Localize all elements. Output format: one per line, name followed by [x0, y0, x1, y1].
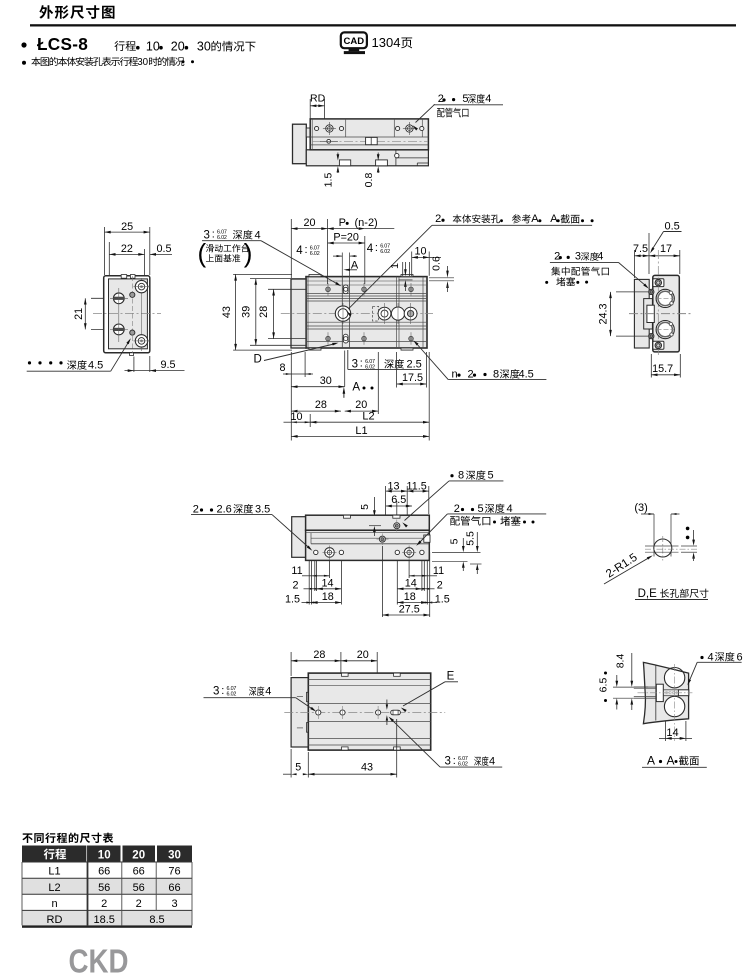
svg-text::: : [375, 242, 378, 254]
svg-text:56: 56 [133, 882, 145, 894]
svg-text:2: 2 [292, 580, 298, 592]
svg-text:6.02: 6.02 [458, 761, 468, 767]
svg-text:10: 10 [146, 40, 160, 54]
svg-text:(: ( [198, 238, 207, 268]
svg-text:30: 30 [197, 40, 211, 54]
svg-text:4: 4 [296, 245, 303, 257]
svg-text:15.7: 15.7 [652, 363, 673, 375]
svg-text:5: 5 [488, 470, 494, 482]
svg-text:2.5: 2.5 [407, 359, 422, 371]
svg-text:(3): (3) [634, 502, 647, 514]
svg-text:P: P [339, 217, 346, 229]
svg-text:9.5: 9.5 [161, 359, 176, 371]
svg-text:n: n [51, 898, 57, 910]
svg-text:11: 11 [433, 565, 444, 577]
svg-text:20: 20 [132, 849, 145, 861]
svg-text:4: 4 [255, 229, 261, 241]
svg-text:L1: L1 [355, 425, 367, 437]
svg-text:A: A [550, 213, 558, 225]
svg-text:L2: L2 [362, 411, 374, 423]
svg-text:1.5: 1.5 [285, 593, 300, 605]
svg-text:18.5: 18.5 [93, 914, 114, 926]
svg-text:L2: L2 [48, 882, 60, 894]
svg-text:3: 3 [575, 251, 581, 263]
svg-text:RD: RD [310, 93, 326, 105]
svg-text:21: 21 [73, 308, 85, 320]
svg-text:2: 2 [193, 503, 199, 515]
svg-text:66: 66 [133, 866, 145, 878]
svg-text::: : [360, 358, 363, 370]
svg-text:8.5: 8.5 [149, 914, 164, 926]
svg-text:1304: 1304 [372, 35, 401, 50]
svg-text:7.5: 7.5 [633, 243, 648, 255]
svg-text::: : [212, 229, 215, 241]
svg-text:1: 1 [389, 263, 401, 269]
svg-text:18: 18 [322, 591, 334, 603]
svg-text:30: 30 [168, 849, 181, 861]
svg-text:A: A [531, 213, 539, 225]
svg-text:3: 3 [171, 898, 177, 910]
svg-text:4: 4 [708, 651, 714, 663]
svg-text:10: 10 [290, 411, 302, 423]
svg-text:20: 20 [357, 649, 369, 661]
svg-text:13: 13 [388, 481, 400, 493]
svg-text:39: 39 [241, 306, 253, 318]
svg-text:6.02: 6.02 [217, 235, 227, 241]
svg-text:): ) [244, 238, 253, 268]
svg-text:4.5: 4.5 [519, 369, 534, 381]
svg-text:20: 20 [171, 40, 185, 54]
svg-text:28: 28 [313, 649, 325, 661]
svg-text:0.5: 0.5 [665, 221, 680, 233]
svg-text:28: 28 [315, 399, 327, 411]
svg-text:8: 8 [493, 369, 499, 381]
svg-text:4: 4 [489, 756, 495, 768]
svg-text:D: D [254, 354, 262, 366]
svg-text:0.5: 0.5 [157, 243, 172, 255]
svg-text:(n-2): (n-2) [355, 217, 378, 229]
svg-text:10: 10 [415, 246, 427, 258]
svg-text:5: 5 [462, 93, 468, 105]
svg-text:2: 2 [136, 898, 142, 910]
svg-text:5: 5 [478, 503, 484, 515]
svg-text:3: 3 [445, 756, 451, 768]
svg-text:11: 11 [291, 565, 302, 577]
svg-text:2: 2 [468, 369, 474, 381]
svg-text:4: 4 [485, 93, 491, 105]
svg-text:CAD: CAD [344, 36, 365, 47]
svg-text:4: 4 [265, 686, 271, 698]
svg-text:66: 66 [168, 882, 180, 894]
svg-text:24.3: 24.3 [598, 303, 610, 324]
svg-text:P=20: P=20 [333, 232, 359, 244]
svg-text:20: 20 [303, 217, 315, 229]
svg-text:30: 30 [137, 57, 148, 68]
svg-text:8.4: 8.4 [614, 654, 626, 669]
svg-text:25: 25 [121, 221, 133, 233]
svg-text:ŁCS-8: ŁCS-8 [37, 34, 88, 54]
svg-text::: : [453, 755, 456, 767]
svg-text::: : [221, 685, 224, 697]
svg-text:5: 5 [448, 538, 460, 544]
svg-text:30: 30 [320, 375, 332, 387]
svg-text:3: 3 [213, 686, 219, 698]
svg-text:17.5: 17.5 [402, 372, 423, 384]
svg-text:17: 17 [660, 243, 672, 255]
svg-text:8: 8 [458, 470, 464, 482]
svg-text:66: 66 [98, 866, 110, 878]
svg-text:43: 43 [221, 306, 233, 318]
svg-text:A: A [647, 753, 655, 767]
svg-text:1.5: 1.5 [323, 173, 335, 188]
svg-text:2: 2 [454, 503, 460, 515]
svg-text:4: 4 [367, 243, 374, 255]
svg-text:2: 2 [101, 898, 107, 910]
svg-text:1.5: 1.5 [435, 593, 450, 605]
svg-text:11.5: 11.5 [407, 481, 427, 493]
svg-text:27.5: 27.5 [399, 604, 420, 616]
svg-text:28: 28 [258, 306, 270, 318]
svg-text:5.5: 5.5 [464, 531, 476, 546]
svg-text:A: A [667, 753, 675, 767]
svg-text:6.02: 6.02 [380, 249, 390, 255]
svg-text:2: 2 [437, 580, 443, 592]
svg-text:14: 14 [666, 727, 678, 739]
svg-text:56: 56 [98, 882, 110, 894]
svg-text:14: 14 [405, 577, 417, 589]
svg-text:18: 18 [404, 591, 416, 603]
svg-text:L1: L1 [48, 866, 60, 878]
svg-text:0.6: 0.6 [431, 256, 443, 271]
svg-text:0.8: 0.8 [363, 173, 375, 188]
svg-text:4.5: 4.5 [88, 360, 103, 372]
svg-text:CKD: CKD [69, 943, 129, 976]
svg-text:RD: RD [47, 914, 63, 926]
svg-text:D,E: D,E [638, 588, 658, 600]
svg-text:6.5: 6.5 [598, 678, 610, 693]
svg-text:76: 76 [168, 866, 180, 878]
svg-text:3: 3 [352, 359, 358, 371]
svg-text:E: E [447, 671, 455, 683]
svg-text:14: 14 [321, 577, 333, 589]
svg-text:2: 2 [435, 213, 441, 225]
svg-text:5: 5 [295, 762, 301, 774]
svg-text:20: 20 [355, 399, 367, 411]
svg-text:3.5: 3.5 [255, 503, 270, 515]
svg-text:6.02: 6.02 [310, 251, 320, 257]
svg-text:6: 6 [737, 651, 743, 663]
svg-text:43: 43 [361, 762, 373, 774]
svg-text::: : [305, 244, 308, 256]
svg-text:2.6: 2.6 [217, 503, 232, 515]
svg-text:n: n [452, 369, 458, 381]
svg-text:8: 8 [279, 362, 285, 374]
svg-text:A: A [352, 382, 360, 394]
svg-text:5: 5 [359, 504, 371, 510]
svg-text:6.02: 6.02 [227, 692, 237, 698]
svg-text:22: 22 [121, 243, 133, 255]
svg-text:10: 10 [98, 849, 111, 861]
svg-text:4: 4 [597, 251, 603, 263]
svg-text:6.5: 6.5 [391, 494, 406, 506]
svg-text:4: 4 [507, 503, 513, 515]
